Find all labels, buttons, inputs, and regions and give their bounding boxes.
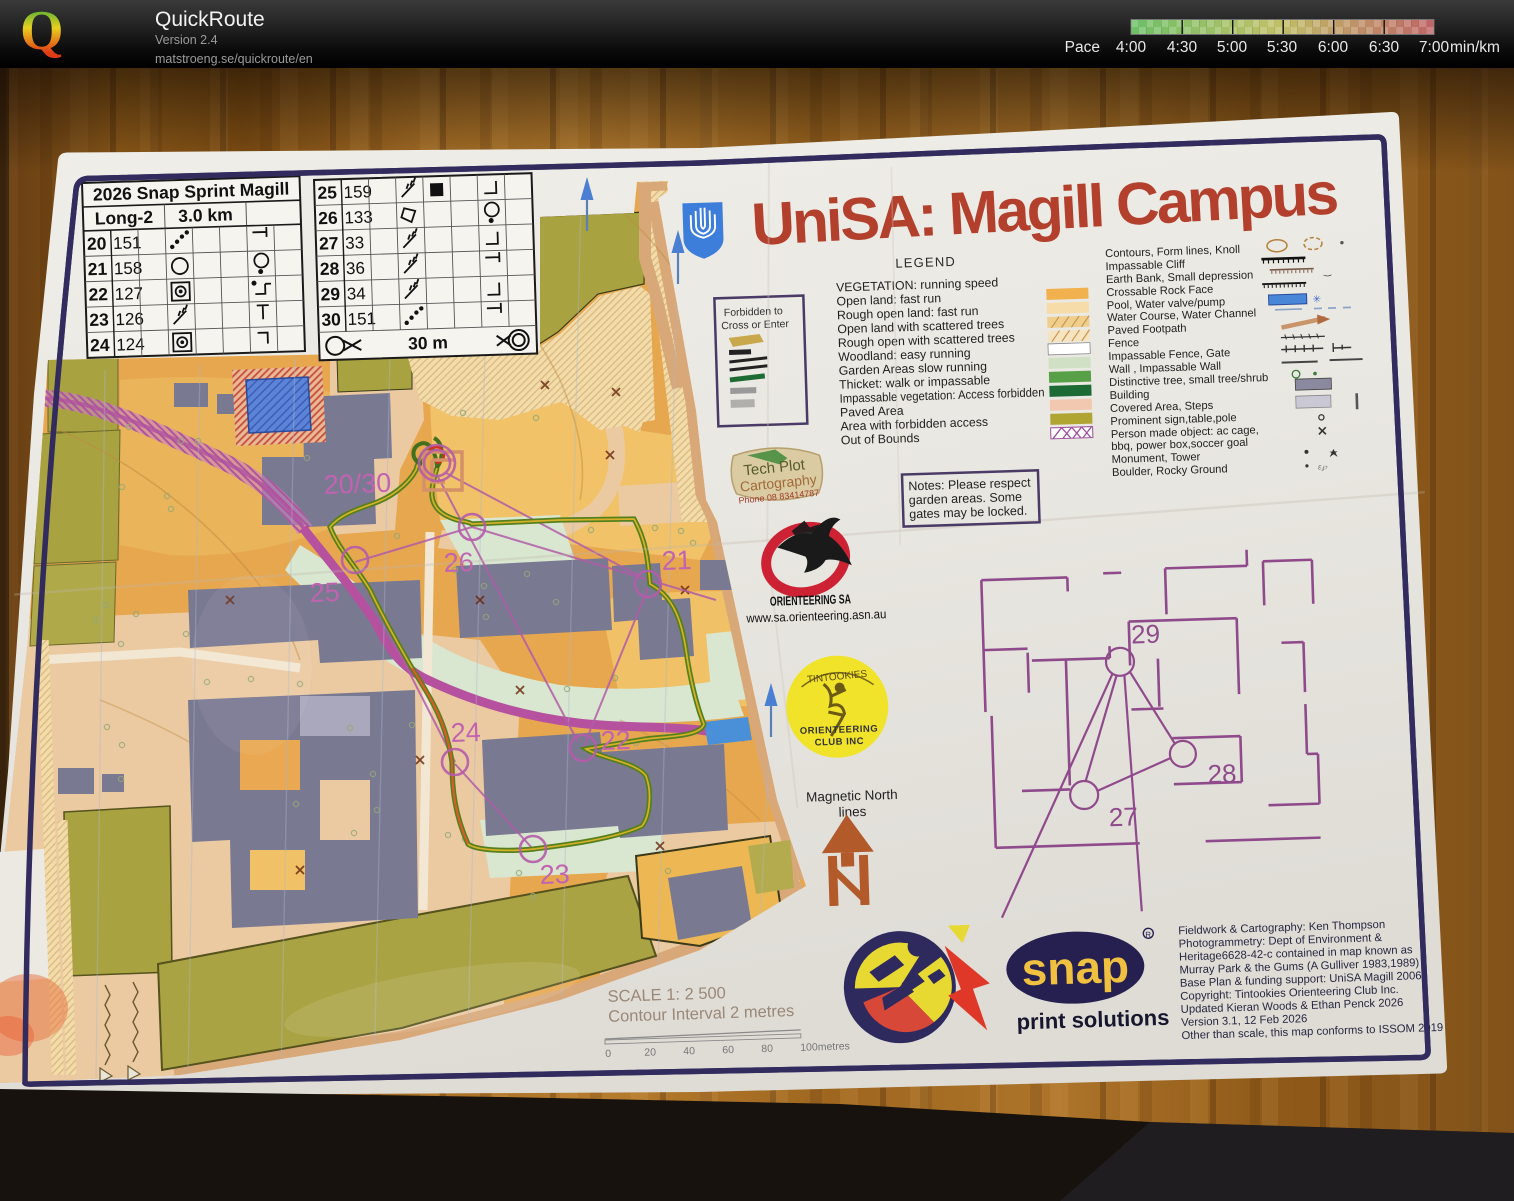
svg-text:6:00: 6:00 <box>1318 39 1349 56</box>
svg-text:5:00: 5:00 <box>1217 39 1248 56</box>
svg-text:6:30: 6:30 <box>1369 39 1400 56</box>
svg-text:Pace: Pace <box>1065 39 1100 56</box>
svg-text:5:30: 5:30 <box>1267 39 1298 56</box>
svg-text:7:00: 7:00 <box>1419 39 1450 56</box>
svg-text:4:30: 4:30 <box>1167 39 1198 56</box>
svg-text:4:00: 4:00 <box>1116 39 1147 56</box>
svg-text:Q: Q <box>20 2 64 62</box>
svg-text:min/km: min/km <box>1450 39 1500 56</box>
